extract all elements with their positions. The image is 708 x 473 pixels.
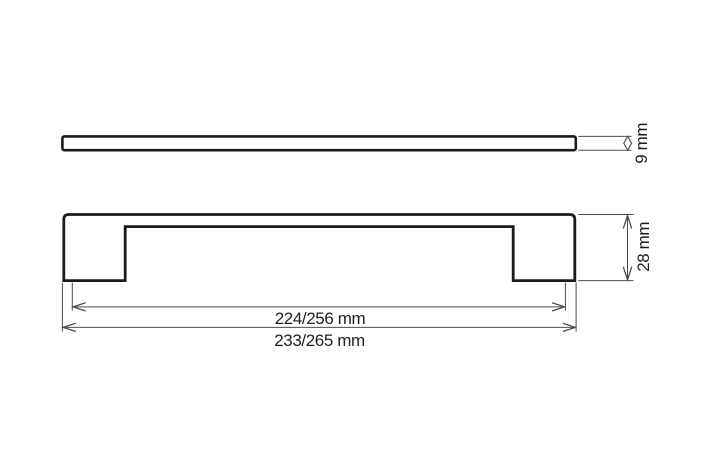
handle-outline bbox=[64, 215, 575, 281]
height-dimension-label: 28 mm bbox=[634, 222, 653, 272]
dimension-diamond-arrow bbox=[624, 136, 632, 150]
thickness-dimension-label: 9 mm bbox=[632, 123, 651, 164]
overall-length-dimension-label: 233/265 mm bbox=[274, 331, 365, 350]
drawing-canvas: 9 mm 28 mm 224/256 mm bbox=[0, 0, 708, 473]
height-dimension: 28 mm bbox=[578, 215, 653, 281]
hole-spacing-dimension-label: 224/256 mm bbox=[275, 309, 366, 328]
top-view: 9 mm bbox=[62, 123, 651, 164]
hole-spacing-dimension: 224/256 mm bbox=[72, 283, 565, 328]
bar-outline bbox=[62, 136, 575, 150]
front-view: 28 mm 224/256 mm 233/265 mm bbox=[62, 215, 653, 350]
technical-drawing: 9 mm 28 mm 224/256 mm bbox=[0, 0, 708, 473]
